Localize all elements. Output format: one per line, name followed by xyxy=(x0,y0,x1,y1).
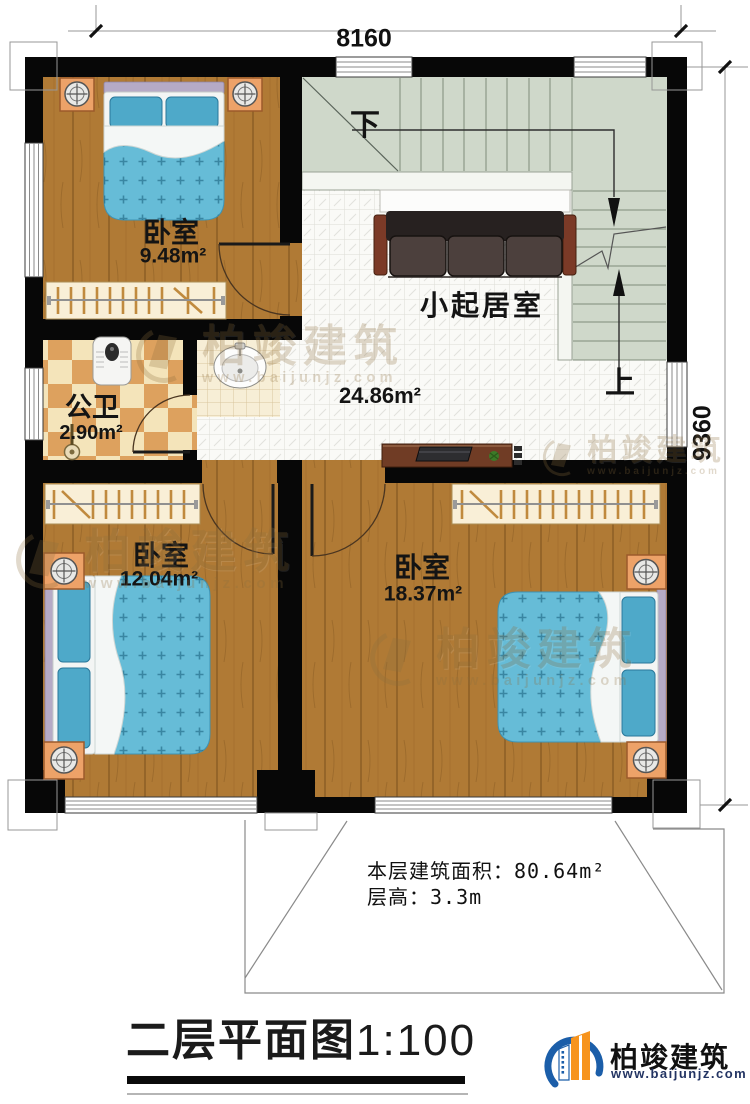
stair-upper-flight xyxy=(302,77,572,172)
desk xyxy=(382,444,522,467)
pillow xyxy=(622,597,655,663)
room-label-livingroom: 小起居室 xyxy=(420,292,544,320)
room-label-bedroom-topleft: 卧室 xyxy=(143,219,199,247)
window-right-1 xyxy=(667,362,687,447)
dimension-top-label: 8160 xyxy=(336,27,392,52)
plan-graphic xyxy=(0,0,750,1104)
room-label-bathroom: 公卫 xyxy=(65,395,119,422)
pillow xyxy=(58,582,90,662)
window-left-1 xyxy=(25,143,43,277)
room-area-bathroom: 2.90m² xyxy=(59,423,122,443)
pillow xyxy=(110,97,162,128)
nightstand xyxy=(627,555,666,589)
nightstand xyxy=(44,742,84,779)
window-top-1 xyxy=(336,57,412,77)
stair-down-label: 下 xyxy=(350,111,380,141)
nightstand xyxy=(44,553,84,589)
sofa-console xyxy=(380,190,570,212)
nightstand xyxy=(627,742,666,778)
stair-up-label: 上 xyxy=(605,369,635,399)
floor-plan-canvas: 8160 9360 卧室 9.48m² 公卫 2.90m² 小起居室 24.86… xyxy=(0,0,750,1104)
window-left-2 xyxy=(25,368,43,440)
nightstand xyxy=(60,78,94,111)
bed-bottomright xyxy=(498,588,666,744)
window-top-2 xyxy=(574,57,646,77)
bed-topleft xyxy=(104,82,224,220)
drawing-title: 二层平面图1:100 xyxy=(126,1004,476,1068)
bed-bottomleft xyxy=(45,572,210,758)
pillow xyxy=(622,670,655,736)
title-underline-thin xyxy=(127,1093,468,1095)
laptop xyxy=(416,447,472,461)
wardrobe-topleft xyxy=(46,282,226,319)
brand-logo-icon xyxy=(543,1024,609,1094)
floor-area-text: 本层建筑面积：80.64m² xyxy=(367,858,605,884)
room-label-bedroom-bottomright: 卧室 xyxy=(394,554,450,582)
window-bottom-1 xyxy=(65,797,257,813)
floor-height-text: 层高：3.3m xyxy=(367,884,605,910)
nightstand xyxy=(228,78,262,111)
window-bottom-2 xyxy=(375,797,612,813)
brand-website: www.baijunjz.com xyxy=(611,1066,747,1081)
drawing-scale: 1:100 xyxy=(356,1016,476,1065)
room-label-bedroom-bottomleft: 卧室 xyxy=(133,542,189,570)
room-area-livingroom: 24.86m² xyxy=(339,385,421,407)
sofa xyxy=(374,190,576,277)
pillow xyxy=(58,668,90,748)
dimension-right-label: 9360 xyxy=(691,405,716,461)
room-area-bedroom-topleft: 9.48m² xyxy=(140,246,207,267)
wardrobe-bottomright xyxy=(452,484,660,524)
drawing-title-text: 二层平面图 xyxy=(126,1016,356,1065)
room-area-bedroom-bottomright: 18.37m² xyxy=(384,584,462,605)
wardrobe-bottomleft xyxy=(45,484,200,524)
floor-info: 本层建筑面积：80.64m² 层高：3.3m xyxy=(367,858,605,910)
stair-railing-horizontal xyxy=(302,172,572,190)
title-underline xyxy=(127,1076,465,1084)
room-area-bedroom-bottomleft: 12.04m² xyxy=(120,569,198,590)
pillow xyxy=(166,97,218,128)
squat-toilet xyxy=(93,337,131,385)
